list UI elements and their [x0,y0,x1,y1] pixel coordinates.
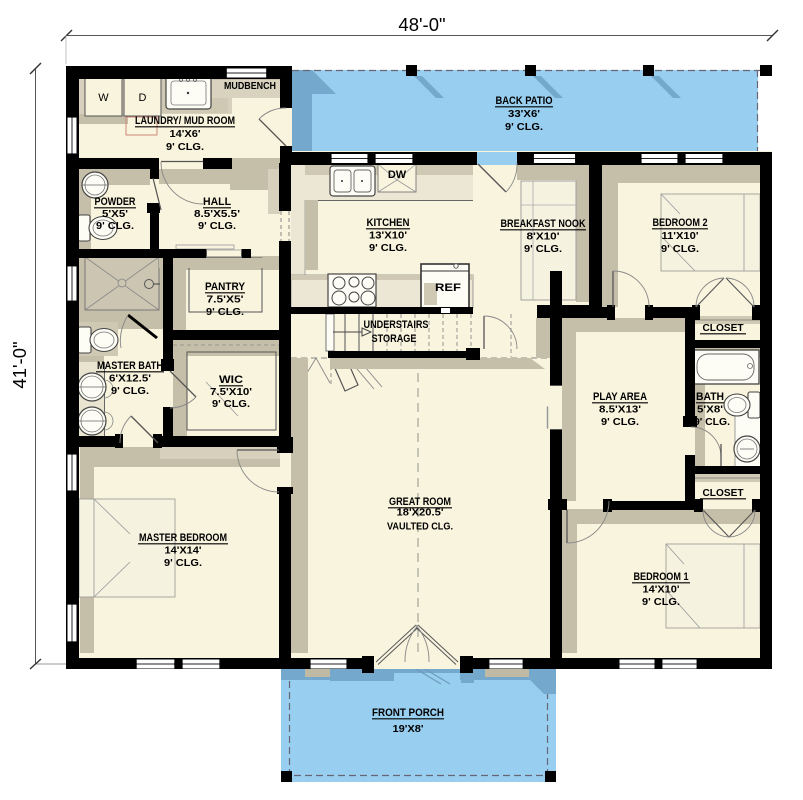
svg-text:BREAKFAST NOOK: BREAKFAST NOOK [501,218,586,230]
svg-text:STORAGE: STORAGE [372,333,417,345]
svg-text:9' CLG.: 9' CLG. [96,220,134,232]
svg-text:7.5'X5': 7.5'X5' [207,294,244,306]
svg-text:18'X20.5': 18'X20.5' [397,507,444,519]
svg-text:9' CLG.: 9' CLG. [661,243,699,255]
svg-text:VAULTED CLG.: VAULTED CLG. [387,521,453,533]
svg-text:POWDER: POWDER [95,196,136,208]
svg-text:9' CLG.: 9' CLG. [642,596,680,608]
svg-text:FRONT PORCH: FRONT PORCH [372,707,444,719]
svg-text:UNDERSTAIRS: UNDERSTAIRS [364,319,429,331]
svg-text:9' CLG.: 9' CLG. [601,416,639,428]
svg-text:DW: DW [388,169,407,181]
svg-text:9' CLG.: 9' CLG. [505,121,543,133]
svg-text:BACK PATIO: BACK PATIO [496,95,553,107]
svg-text:BEDROOM 1: BEDROOM 1 [634,571,689,583]
svg-text:41'-0": 41'-0" [9,341,30,388]
svg-text:9' CLG.: 9' CLG. [198,220,236,232]
svg-text:W: W [98,92,109,104]
svg-text:LAUNDRY/ MUD ROOM: LAUNDRY/ MUD ROOM [135,115,235,127]
svg-text:MUDBENCH: MUDBENCH [224,81,276,92]
svg-text:8.5'X13': 8.5'X13' [599,404,641,416]
svg-text:48'-0": 48'-0" [398,14,445,35]
svg-text:CLOSET: CLOSET [703,487,745,499]
svg-text:6'X12.5': 6'X12.5' [109,373,151,385]
svg-text:MASTER BEDROOM: MASTER BEDROOM [139,532,227,544]
svg-text:14'X10': 14'X10' [643,584,680,596]
svg-text:8'X10': 8'X10' [527,231,560,243]
svg-text:REF: REF [435,282,461,294]
svg-text:14'X14': 14'X14' [165,545,202,557]
svg-text:MASTER BATH: MASTER BATH [97,360,163,372]
svg-text:9' CLG.: 9' CLG. [212,398,250,410]
svg-text:5'X5': 5'X5' [102,208,128,220]
svg-text:PANTRY: PANTRY [205,281,246,293]
svg-text:9' CLG.: 9' CLG. [166,141,204,153]
svg-text:9' CLG.: 9' CLG. [524,243,562,255]
svg-text:PLAY AREA: PLAY AREA [593,391,647,403]
svg-text:9' CLG.: 9' CLG. [694,416,730,428]
svg-text:9' CLG.: 9' CLG. [369,242,407,254]
svg-text:8.5'X5.5': 8.5'X5.5' [194,208,240,220]
svg-text:HALL: HALL [203,196,231,208]
svg-text:WIC: WIC [219,374,243,386]
svg-text:11'X10': 11'X10' [662,230,699,242]
svg-text:KITCHEN: KITCHEN [367,217,410,229]
svg-text:BEDROOM 2: BEDROOM 2 [653,217,708,229]
svg-text:9' CLG.: 9' CLG. [206,306,244,318]
svg-text:9' CLG.: 9' CLG. [111,385,149,397]
svg-text:33'X6': 33'X6' [508,108,540,120]
svg-text:BATH: BATH [696,391,724,403]
svg-text:CLOSET: CLOSET [703,322,745,334]
svg-text:13'X10': 13'X10' [369,230,407,242]
svg-text:7.5'X10': 7.5'X10' [210,386,252,398]
svg-text:9' CLG.: 9' CLG. [164,557,202,569]
svg-text:5'X8': 5'X8' [697,404,723,416]
svg-text:19'X8': 19'X8' [393,723,424,735]
svg-text:D: D [139,92,147,104]
svg-text:14'X6': 14'X6' [170,128,201,140]
